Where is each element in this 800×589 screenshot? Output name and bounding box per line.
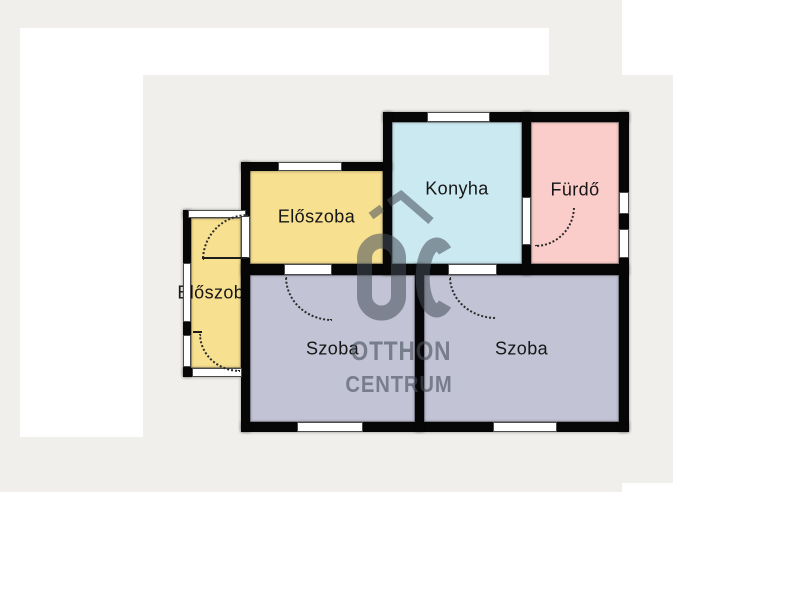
room-label-konyha: Konyha (425, 179, 488, 200)
wall-segment (522, 112, 531, 275)
door-opening (448, 264, 497, 275)
window-opening (183, 335, 191, 367)
floorplan-canvas: Előszoba Előszoba Konyha Fürdő Szoba Szo… (0, 0, 800, 589)
wall-segment (383, 112, 629, 122)
background-panel (622, 75, 673, 483)
window-opening (297, 422, 363, 432)
window-opening (493, 422, 557, 432)
window-opening (183, 263, 191, 322)
watermark-text-line1: OTTHON (317, 336, 485, 367)
room-label-furdo: Fürdő (550, 180, 599, 201)
room-eloszoba-main: Előszoba (250, 170, 383, 264)
window-opening (619, 229, 629, 258)
room-konyha: Konyha (392, 122, 522, 264)
door-leaf-line (202, 257, 247, 259)
room-label-szoba-right: Szoba (495, 338, 548, 359)
door-leaf-line (193, 331, 202, 333)
window-opening (427, 112, 490, 122)
wall-segment (619, 112, 629, 432)
window-opening (278, 162, 342, 171)
room-label-eloszoba-main: Előszoba (278, 207, 355, 228)
background-notch (20, 28, 143, 437)
door-opening (284, 264, 332, 275)
wall-segment (383, 112, 392, 275)
wall-segment (241, 162, 250, 432)
window-opening (619, 192, 629, 214)
watermark-text-line2: CENTRUM (311, 371, 487, 398)
door-opening (522, 197, 531, 245)
